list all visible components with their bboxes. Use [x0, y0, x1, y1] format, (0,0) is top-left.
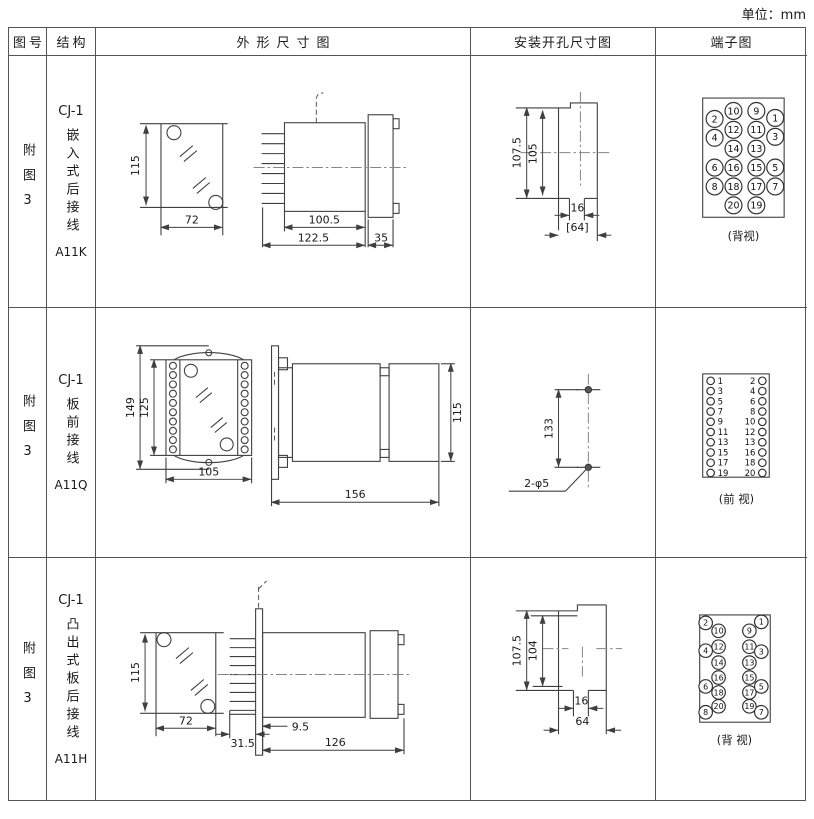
- dim-height: 115: [129, 662, 142, 683]
- svg-text:6: 6: [703, 682, 708, 691]
- svg-text:7: 7: [758, 708, 763, 717]
- structure-label: 凸出式板后接线: [61, 617, 80, 743]
- svg-text:9: 9: [746, 626, 751, 635]
- svg-text:6: 6: [749, 396, 754, 406]
- svg-text:12: 12: [713, 642, 723, 651]
- svg-text:3: 3: [772, 132, 778, 143]
- terminal-diagram-a11h-cell: 1012141618209111315171924681357 (背 视): [656, 558, 807, 800]
- fig-no-a11k: 附图3: [9, 56, 47, 308]
- dim-outer-height: 107.5: [511, 635, 524, 666]
- svg-text:11: 11: [717, 427, 728, 437]
- dim-outer-height: 149: [124, 397, 137, 418]
- pin-lines: [262, 134, 285, 204]
- svg-text:13: 13: [744, 658, 754, 667]
- terminal-caption: (背视): [727, 229, 759, 243]
- svg-text:8: 8: [711, 182, 717, 193]
- svg-text:20: 20: [727, 201, 739, 212]
- code-label: A11H: [55, 752, 88, 766]
- dim-inner-height: 104: [527, 640, 540, 661]
- svg-text:1: 1: [717, 376, 722, 386]
- svg-text:17: 17: [750, 182, 762, 193]
- dim-width: 105: [198, 465, 219, 478]
- dim-width: 72: [185, 213, 199, 226]
- svg-text:15: 15: [717, 447, 728, 457]
- structure-label: 嵌入式后接线: [61, 128, 80, 236]
- svg-text:19: 19: [750, 201, 762, 212]
- terminal-diagram-a11q-cell: 1234567891011121313151617181920 (前 视): [656, 308, 807, 558]
- svg-text:15: 15: [750, 163, 762, 174]
- svg-text:19: 19: [717, 468, 728, 478]
- svg-text:14: 14: [713, 658, 723, 667]
- structure-a11h: CJ-1 凸出式板后接线 A11H: [47, 558, 96, 800]
- svg-text:7: 7: [717, 407, 722, 417]
- mounting-drawing-a11h-cell: 107.5 104 16 64: [471, 558, 656, 800]
- svg-text:4: 4: [711, 133, 717, 144]
- terminal-diagram-a11k: 1012141618209111315171924681357 (背视): [657, 56, 807, 307]
- code-label: A11K: [55, 245, 86, 259]
- dim-pin-length: 31.5: [230, 737, 254, 750]
- svg-text:10: 10: [727, 106, 739, 117]
- model-label: CJ-1: [58, 373, 83, 388]
- svg-text:4: 4: [703, 646, 708, 655]
- dim-notch-width: 16: [570, 201, 584, 214]
- svg-text:2: 2: [749, 376, 754, 386]
- header-structure: 结构: [47, 28, 96, 56]
- hole-size-label: 2-φ5: [524, 477, 549, 490]
- outline-drawing-a11q: 149 125 105 15: [96, 308, 470, 557]
- svg-text:1: 1: [758, 617, 763, 626]
- svg-text:15: 15: [744, 673, 754, 682]
- dim-length: 126: [325, 736, 346, 749]
- svg-text:9: 9: [717, 417, 722, 427]
- svg-text:20: 20: [744, 468, 755, 478]
- svg-text:4: 4: [749, 386, 754, 396]
- svg-text:3: 3: [758, 647, 763, 656]
- model-label: CJ-1: [58, 104, 83, 119]
- fig-no-a11h: 附图3: [9, 558, 47, 800]
- outline-drawing-a11h-cell: 115 72 9.5 31.5: [96, 558, 471, 800]
- dim-hole-spacing: 133: [543, 418, 556, 439]
- dim-inner-height: 125: [138, 397, 151, 418]
- dim-body-length: 100.5: [309, 213, 340, 226]
- spec-table: 图号 结构 外形尺寸图 安装开孔尺寸图 端子图 附图3 CJ-1 嵌入式后接线 …: [8, 27, 806, 801]
- terminal-diagram-a11k-cell: 1012141618209111315171924681357 (背视): [656, 56, 807, 308]
- svg-text:17: 17: [744, 688, 754, 697]
- svg-text:8: 8: [703, 708, 708, 717]
- svg-text:16: 16: [727, 163, 739, 174]
- mounting-drawing-a11k: 107.5 105 16 [64]: [471, 56, 655, 307]
- svg-text:19: 19: [744, 702, 754, 711]
- mounting-drawing-a11q: 133 2-φ5: [471, 308, 655, 557]
- mounting-drawing-a11q-cell: 133 2-φ5: [471, 308, 656, 558]
- outline-drawing-a11h: 115 72 9.5 31.5: [96, 559, 470, 800]
- dim-total-length: 122.5: [298, 231, 329, 244]
- svg-text:16: 16: [744, 447, 755, 457]
- svg-text:1: 1: [772, 113, 778, 124]
- svg-text:17: 17: [717, 458, 728, 468]
- structure-a11k: CJ-1 嵌入式后接线 A11K: [47, 56, 96, 308]
- dim-total-width: [64]: [566, 221, 588, 234]
- svg-text:2: 2: [703, 618, 708, 627]
- svg-text:13: 13: [750, 144, 762, 155]
- svg-text:10: 10: [744, 417, 755, 427]
- svg-text:2: 2: [711, 114, 717, 125]
- code-label: A11Q: [55, 478, 88, 492]
- svg-text:18: 18: [713, 688, 723, 697]
- dim-outer-height: 107.5: [511, 137, 524, 168]
- terminal-diagram-a11h: 1012141618209111315171924681357 (背 视): [657, 559, 807, 800]
- outline-drawing-a11k: 115 72 100.5 122.5: [96, 56, 470, 307]
- structure-label: 板前接线: [62, 397, 81, 469]
- svg-text:9: 9: [753, 106, 759, 117]
- dim-rear-height: 115: [451, 402, 464, 423]
- dim-inner-height: 105: [527, 143, 540, 164]
- svg-text:11: 11: [744, 642, 754, 651]
- dim-notch-width: 16: [574, 694, 588, 707]
- svg-text:13: 13: [717, 437, 728, 447]
- fig-no-a11q: 附图3: [9, 308, 47, 558]
- svg-text:18: 18: [744, 458, 755, 468]
- svg-text:8: 8: [749, 407, 754, 417]
- svg-text:10: 10: [713, 626, 723, 635]
- svg-text:5: 5: [717, 396, 722, 406]
- dim-offset: 9.5: [292, 720, 309, 733]
- header-fig-no: 图号: [9, 28, 47, 56]
- dim-flange-depth: 35: [374, 231, 388, 244]
- outline-drawing-a11q-cell: 149 125 105 15: [96, 308, 471, 558]
- svg-text:7: 7: [772, 182, 778, 193]
- header-mounting: 安装开孔尺寸图: [471, 28, 656, 56]
- terminal-circles: 1012141618209111315171924681357: [698, 615, 767, 719]
- terminal-diagram-a11q: 1234567891011121313151617181920 (前 视): [657, 308, 807, 557]
- outline-drawing-a11k-cell: 115 72 100.5 122.5: [96, 56, 471, 308]
- dim-height: 115: [129, 155, 142, 176]
- header-terminal: 端子图: [656, 28, 807, 56]
- svg-text:14: 14: [727, 144, 739, 155]
- svg-text:13: 13: [744, 437, 755, 447]
- svg-text:5: 5: [758, 682, 763, 691]
- svg-text:6: 6: [711, 163, 717, 174]
- fig-no-label: 附图3: [18, 394, 37, 471]
- datasheet-page: 单位：mm 图号 结构 外形尺寸图 安装开孔尺寸图 端子图 附图3 CJ-1 嵌…: [8, 4, 806, 801]
- svg-text:3: 3: [717, 386, 722, 396]
- svg-text:18: 18: [727, 182, 739, 193]
- dim-total-width: 64: [575, 715, 589, 728]
- terminal-circles: 1234567891011121313151617181920: [706, 376, 765, 478]
- terminal-caption: (前 视): [718, 492, 753, 506]
- terminal-caption: (背 视): [716, 733, 751, 747]
- dim-length: 156: [345, 488, 366, 501]
- svg-text:12: 12: [744, 427, 755, 437]
- model-label: CJ-1: [58, 593, 83, 608]
- right-terminal-strip: [241, 362, 248, 453]
- unit-label: 单位：mm: [8, 4, 806, 27]
- svg-text:12: 12: [727, 125, 739, 136]
- left-terminal-strip: [169, 362, 176, 453]
- fig-no-label: 附图3: [18, 641, 37, 718]
- dim-width: 72: [179, 714, 193, 727]
- fig-no-label: 附图3: [18, 143, 37, 220]
- mounting-drawing-a11k-cell: 107.5 105 16 [64]: [471, 56, 656, 308]
- structure-a11q: CJ-1 板前接线 A11Q: [47, 308, 96, 558]
- terminal-circles: 1012141618209111315171924681357: [706, 103, 783, 214]
- header-outline: 外形尺寸图: [96, 28, 471, 56]
- svg-text:11: 11: [750, 125, 762, 136]
- svg-text:5: 5: [772, 163, 778, 174]
- svg-text:16: 16: [713, 673, 723, 682]
- mounting-drawing-a11h: 107.5 104 16 64: [471, 559, 655, 800]
- svg-text:20: 20: [713, 702, 723, 711]
